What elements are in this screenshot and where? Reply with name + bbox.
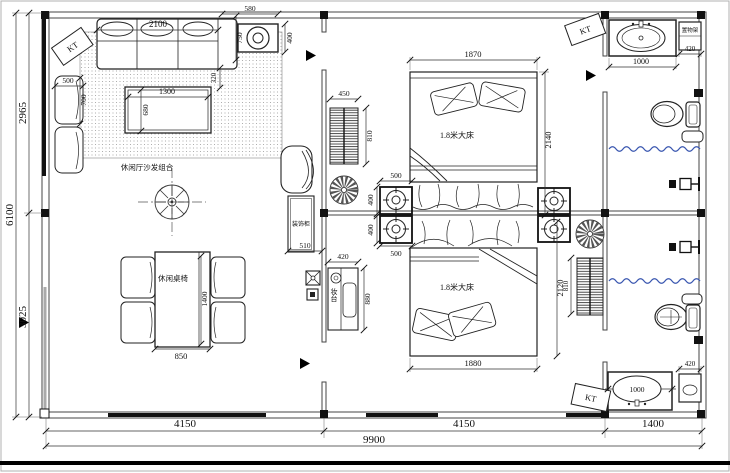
nightstand-lamp	[541, 216, 567, 242]
floor-drain-symbols	[306, 271, 320, 300]
dim-coffee-width: 680	[141, 104, 150, 116]
dim-nightstand-bottom-depth: 400	[366, 224, 375, 236]
dim-sofa-depth: 750	[235, 32, 244, 44]
dim-coffee-length: 1300	[159, 87, 175, 96]
desk-chair	[281, 146, 314, 193]
dim-shelf-top-width: 420	[685, 45, 696, 53]
dim-dining-width: 850	[175, 351, 188, 361]
dim-dresser-depth: 880	[363, 293, 372, 305]
bath-mat-top	[682, 131, 703, 142]
dim-corner-unit-width: 580	[244, 4, 256, 13]
nightstand-lamp	[383, 216, 409, 242]
marker-triangle	[300, 358, 310, 369]
vanity-top	[609, 20, 676, 56]
dim-left-lower: 3025	[17, 306, 29, 329]
duct-bottom	[694, 336, 703, 344]
dim-vanity-bottom-width: 1000	[630, 385, 645, 394]
sofa-group-label: 休闲厅沙发组合	[121, 162, 174, 172]
dim-bottom-middle: 4150	[453, 418, 476, 430]
dim-left-total: 6100	[4, 204, 16, 227]
dim-nightstand-top-width: 500	[390, 171, 402, 180]
wall-bedroom-bath	[603, 92, 607, 211]
dim-nightstand-bottom-width: 500	[390, 249, 402, 258]
marker-triangle	[306, 50, 316, 61]
wall-living-bedroom	[322, 382, 326, 412]
dim-radiator-top-width: 450	[338, 89, 350, 98]
dim-radiator-bottom-height: 810	[562, 280, 570, 291]
marker-triangle	[586, 70, 596, 81]
wall-bedroom-bath	[603, 18, 607, 56]
dim-nightstand-top-depth: 400	[366, 194, 375, 206]
dim-bottom-left: 4150	[174, 418, 197, 430]
toilet-top	[651, 102, 700, 128]
radiator-top	[330, 108, 358, 164]
wall-living-bedroom	[322, 70, 326, 211]
dim-sofa-gap: 320	[210, 72, 218, 83]
column-bottom-left	[40, 409, 49, 418]
dim-bed-top-length: 2140	[543, 132, 553, 149]
dim-bed-top-width: 1870	[465, 49, 482, 59]
dim-armchair-width: 500	[62, 76, 74, 85]
shelf-bottom	[679, 374, 701, 402]
bedroom-bottom	[380, 216, 604, 356]
nightstand-lamp	[383, 187, 409, 213]
shower-head-bottom	[669, 240, 700, 254]
toilet-bottom	[655, 305, 700, 332]
fan-symbol-right	[576, 220, 604, 248]
bed-top	[410, 72, 537, 210]
bed-top-label: 1.8米大床	[440, 130, 474, 140]
wall-living-bedroom	[322, 18, 326, 32]
dim-radiator-top-height: 810	[365, 130, 374, 142]
wall-living-bedroom	[322, 215, 326, 342]
corner-unit	[238, 24, 278, 52]
dim-vanity-top-width: 1000	[633, 57, 649, 66]
duct-top	[694, 89, 703, 97]
dining-set	[121, 252, 245, 347]
dim-sofa-length: 2100	[149, 19, 168, 29]
table-chairs-label: 休闲桌椅	[158, 273, 188, 283]
sofa	[97, 19, 237, 69]
dim-bottom-total: 9900	[363, 434, 386, 446]
dim-left-upper: 2965	[17, 102, 29, 125]
fan-symbol-left	[330, 176, 358, 204]
floor-plan-page: KT	[0, 0, 730, 473]
ceiling-fan-symbol	[138, 168, 206, 236]
bed-bottom-label: 1.8米大床	[440, 282, 474, 292]
dim-shelf-bottom-width: 420	[685, 360, 696, 368]
dim-armchair-depth: 700	[79, 94, 88, 106]
dresser-label: 妆台	[330, 287, 338, 303]
radiator-bottom	[577, 258, 603, 315]
floor-plan-canvas: KT	[0, 0, 730, 473]
shelf-top-label: 置物架	[682, 26, 699, 34]
shower-head-top	[669, 177, 700, 191]
bath-mat-bottom	[682, 294, 702, 304]
dim-bed-bottom-width: 1880	[465, 358, 482, 368]
dim-cabinet-width: 510	[299, 241, 311, 250]
shower-curtain-bottom	[609, 279, 700, 284]
dim-dresser-width: 420	[337, 252, 349, 261]
window-left	[44, 287, 47, 409]
dim-corner-unit-depth: 400	[285, 32, 294, 44]
hall-area	[281, 146, 358, 330]
bathroom-top: KT	[565, 13, 703, 191]
dim-bottom-right: 1400	[642, 418, 665, 430]
dim-dining-length: 1400	[200, 291, 209, 306]
shower-curtain-top	[609, 147, 700, 152]
cabinet-label: 装饰柜	[292, 220, 310, 228]
